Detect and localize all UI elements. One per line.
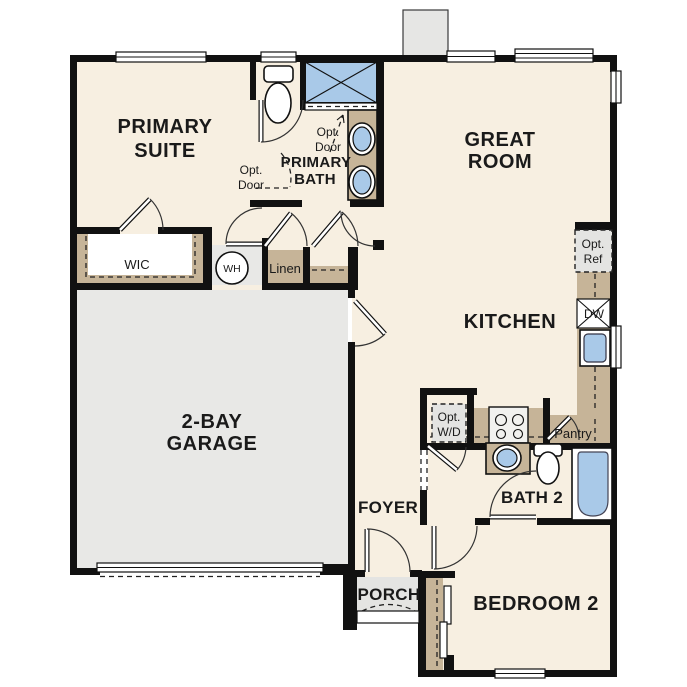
linen-label: Linen [269,261,301,276]
kitchen-label: KITCHEN [464,311,556,333]
primary-toilet [264,66,293,123]
shower [305,62,377,110]
porch-label: PORCH [358,585,421,604]
opt-door-shower-label-line1: Opt. [317,125,340,139]
garage-door [97,563,323,577]
coat-closet [310,266,351,283]
primary-suite-label-line2: SUITE [134,140,195,162]
kitchen-sink [580,330,610,366]
chimney [403,10,448,56]
bedroom2-label: BEDROOM 2 [473,593,599,615]
primary-bath-label-line2: BATH [294,171,336,188]
opt-ref-label-line1: Opt. [582,237,605,251]
opt-wd-label-line2: W/D [437,425,461,439]
pantry-label: Pantry [554,426,592,441]
bathtub [572,448,612,520]
opt-door-shower-label-line2: Door [315,140,341,154]
floor-plan-page: PRIMARY SUITE GREAT ROOM KITCHEN 2-BAY G… [0,0,687,687]
floor-plan: PRIMARY SUITE GREAT ROOM KITCHEN 2-BAY G… [0,0,687,687]
bath2-sink [486,443,530,474]
garage-label-line1: 2-BAY [182,411,243,433]
bath2-label: BATH 2 [501,488,563,507]
opt-door-bath-label-line1: Opt. [240,163,263,177]
great-room-label-line2: ROOM [468,151,532,173]
optional-wall [420,450,428,490]
dishwasher-label: DW [584,307,605,321]
primary-bath-label-line1: PRIMARY [281,154,352,171]
opt-door-bath-label-line2: Door [238,178,264,192]
wic-label: WIC [124,257,149,272]
garage-label-line2: GARAGE [167,433,258,455]
great-room-label-line1: GREAT [464,129,535,151]
stove [489,407,528,443]
opt-wd-label-line1: Opt. [438,410,461,424]
vanity-double-sinks [348,110,377,200]
opt-ref-label-line2: Ref [584,252,603,266]
primary-suite-label-line1: PRIMARY [118,116,213,138]
water-heater-label: WH [223,263,241,275]
foyer-label: FOYER [358,498,418,517]
